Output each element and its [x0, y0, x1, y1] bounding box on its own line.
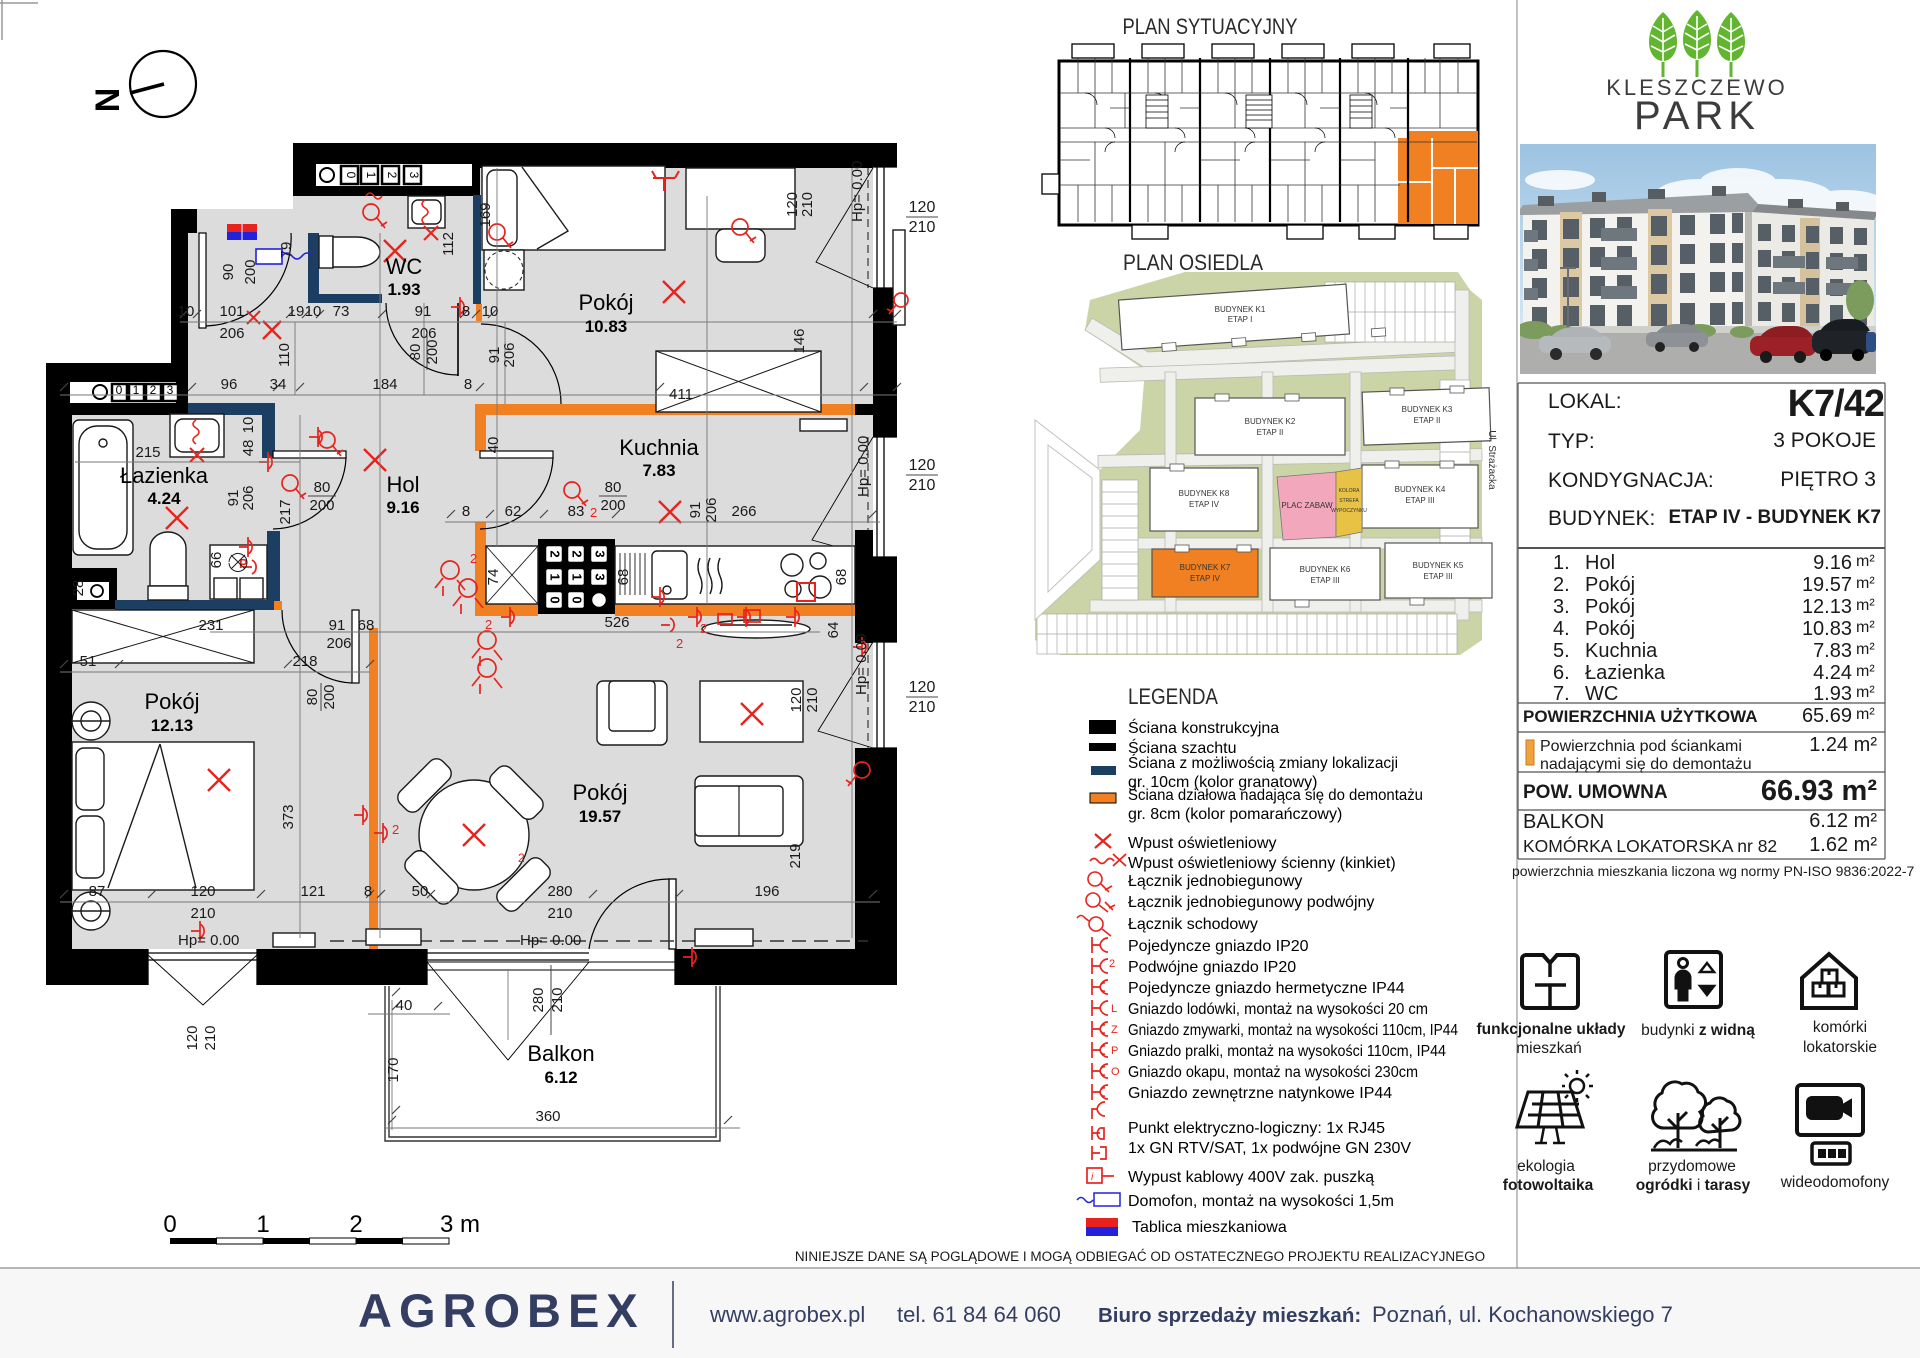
- svg-text:budynki z widną: budynki z widną: [1641, 1022, 1755, 1039]
- svg-text:91: 91: [415, 303, 432, 320]
- svg-text:Hol: Hol: [386, 472, 419, 497]
- svg-text:gr. 8cm (kolor pomarańczowy): gr. 8cm (kolor pomarańczowy): [1128, 806, 1342, 823]
- svg-text:L: L: [1111, 1003, 1117, 1015]
- svg-text:Gniazdo okapu, montaż na wysok: Gniazdo okapu, montaż na wysokości 230cm: [1128, 1064, 1418, 1081]
- svg-text:10: 10: [240, 417, 257, 434]
- svg-text:Tablica mieszkaniowa: Tablica mieszkaniowa: [1132, 1219, 1287, 1236]
- svg-text:280: 280: [530, 987, 547, 1012]
- svg-text:Poznań, ul. Kochanowskiego 7: Poznań, ul. Kochanowskiego 7: [1372, 1302, 1673, 1327]
- svg-text:210: 210: [549, 987, 566, 1012]
- svg-text:BUDYNEK K1: BUDYNEK K1: [1215, 305, 1266, 314]
- svg-text:funkcjonalne układy: funkcjonalne układy: [1476, 1021, 1625, 1038]
- svg-text:19: 19: [288, 303, 305, 320]
- svg-text:Pojedyncze gniazdo hermetyczne: Pojedyncze gniazdo hermetyczne IP44: [1128, 980, 1405, 997]
- svg-text:360: 360: [535, 1108, 560, 1125]
- svg-text:210: 210: [190, 905, 215, 922]
- svg-text:121: 121: [300, 883, 325, 900]
- svg-text:10: 10: [482, 303, 499, 320]
- svg-text:3 POKOJE: 3 POKOJE: [1773, 429, 1876, 452]
- svg-text:0: 0: [548, 596, 563, 603]
- svg-text:KONDYGNACJA:: KONDYGNACJA:: [1548, 469, 1714, 492]
- svg-text:Hp= 0.00: Hp= 0.00: [178, 932, 239, 949]
- svg-text:90: 90: [220, 264, 237, 281]
- svg-text:120: 120: [184, 1025, 201, 1050]
- svg-text:Łazienka: Łazienka: [120, 463, 209, 488]
- svg-text:WC: WC: [386, 254, 423, 279]
- svg-text:68: 68: [833, 569, 850, 586]
- svg-text:210: 210: [909, 477, 936, 494]
- svg-text:7.83: 7.83: [642, 461, 675, 480]
- svg-text:200: 200: [321, 684, 338, 709]
- svg-text:5.: 5.: [1553, 640, 1570, 662]
- svg-text:Wypust kablowy 400V zak. puszk: Wypust kablowy 400V zak. puszką: [1128, 1169, 1374, 1186]
- svg-text:m²: m²: [1856, 663, 1875, 680]
- svg-text:BUDYNEK:: BUDYNEK:: [1548, 507, 1655, 530]
- svg-text:1: 1: [548, 573, 563, 580]
- svg-text:powierzchnia mieszkania liczon: powierzchnia mieszkania liczona wg normy…: [1512, 863, 1915, 879]
- svg-text:200: 200: [309, 497, 334, 514]
- svg-text:2: 2: [385, 172, 399, 179]
- svg-text:196: 196: [754, 883, 779, 900]
- svg-text:ETAP III: ETAP III: [1405, 496, 1434, 505]
- svg-text:Wpust oświetleniowy: Wpust oświetleniowy: [1128, 835, 1277, 852]
- svg-text:80: 80: [314, 479, 331, 496]
- svg-text:83: 83: [568, 503, 585, 520]
- svg-text:ETAP IV - BUDYNEK K7: ETAP IV - BUDYNEK K7: [1668, 507, 1881, 528]
- svg-text:POWIERZCHNIA UŻYTKOWA: POWIERZCHNIA UŻYTKOWA: [1523, 707, 1758, 726]
- svg-text:206: 206: [240, 485, 257, 510]
- svg-text:200: 200: [600, 497, 625, 514]
- svg-text:3 m: 3 m: [440, 1211, 480, 1238]
- svg-text:Hp= 0.00: Hp= 0.00: [853, 634, 870, 695]
- svg-text:m²: m²: [1856, 684, 1875, 701]
- svg-text:80: 80: [304, 689, 321, 706]
- svg-text:91: 91: [329, 617, 346, 634]
- svg-text:210: 210: [799, 192, 816, 217]
- svg-text:73: 73: [333, 303, 350, 320]
- svg-text:Łazienka: Łazienka: [1585, 662, 1666, 684]
- svg-text:Ściana konstrukcyjna: Ściana konstrukcyjna: [1128, 718, 1279, 737]
- svg-text:120: 120: [909, 199, 936, 216]
- svg-text:KOLORA: KOLORA: [1339, 488, 1361, 494]
- svg-text:8: 8: [462, 503, 470, 520]
- svg-text:96: 96: [221, 376, 238, 393]
- svg-text:217: 217: [277, 499, 294, 524]
- svg-text:Podwójne gniazdo IP20: Podwójne gniazdo IP20: [1128, 959, 1296, 976]
- svg-text:120: 120: [909, 679, 936, 696]
- svg-text:8: 8: [462, 303, 470, 320]
- svg-text:K7/42: K7/42: [1788, 383, 1884, 425]
- svg-text:fotowoltaika: fotowoltaika: [1503, 1177, 1594, 1194]
- svg-text:19.57: 19.57: [579, 807, 622, 826]
- svg-text:219: 219: [787, 843, 804, 868]
- svg-text:1.62 m²: 1.62 m²: [1809, 834, 1877, 856]
- svg-text:110: 110: [276, 343, 293, 367]
- svg-text:Gniazdo lodówki, montaż na wys: Gniazdo lodówki, montaż na wysokości 20 …: [1128, 1001, 1428, 1018]
- svg-text:Biuro sprzedaży mieszkań:: Biuro sprzedaży mieszkań:: [1098, 1304, 1361, 1327]
- svg-text:Pojedyncze gniazdo IP20: Pojedyncze gniazdo IP20: [1128, 938, 1309, 955]
- svg-text:3: 3: [593, 550, 608, 557]
- svg-text:10: 10: [178, 303, 195, 320]
- svg-text:210: 210: [804, 687, 821, 712]
- svg-text:120: 120: [788, 687, 805, 712]
- svg-text:0: 0: [163, 1211, 176, 1238]
- svg-text:m²: m²: [1856, 619, 1875, 636]
- svg-text:m²: m²: [1856, 553, 1875, 570]
- svg-text:BUDYNEK K3: BUDYNEK K3: [1402, 405, 1453, 414]
- svg-text:68: 68: [615, 569, 632, 586]
- svg-text:74: 74: [485, 569, 502, 586]
- svg-text:1.93: 1.93: [1813, 683, 1852, 705]
- svg-text:7.83: 7.83: [1813, 640, 1852, 662]
- svg-text:51: 51: [80, 653, 97, 670]
- svg-text:266: 266: [731, 503, 756, 520]
- svg-text:Balkon: Balkon: [527, 1041, 594, 1066]
- svg-text:nadającymi się do demontażu: nadającymi się do demontażu: [1540, 756, 1752, 773]
- svg-text:BUDYNEK K8: BUDYNEK K8: [1179, 489, 1230, 498]
- svg-text:Gniazdo zmywarki, montaż na wy: Gniazdo zmywarki, montaż na wysokości 11…: [1128, 1022, 1458, 1039]
- svg-text:ogródki i tarasy: ogródki i tarasy: [1636, 1177, 1751, 1194]
- svg-text:STREFA: STREFA: [1339, 498, 1359, 504]
- svg-text:Pokój: Pokój: [572, 780, 627, 805]
- svg-text:6.: 6.: [1553, 662, 1570, 684]
- svg-text:4.24: 4.24: [147, 489, 181, 508]
- svg-text:101: 101: [219, 303, 244, 320]
- svg-text:19.57: 19.57: [1802, 574, 1852, 596]
- svg-text:146: 146: [791, 328, 808, 353]
- svg-text:169: 169: [477, 202, 494, 227]
- svg-text:Kuchnia: Kuchnia: [1585, 640, 1658, 662]
- svg-text:ETAP I: ETAP I: [1228, 315, 1253, 324]
- svg-text:210: 210: [909, 699, 936, 716]
- svg-text:1: 1: [570, 573, 585, 580]
- svg-text:8: 8: [364, 883, 372, 900]
- svg-text:2: 2: [570, 550, 585, 557]
- svg-text:PLAN SYTUACYJNY: PLAN SYTUACYJNY: [1123, 14, 1298, 39]
- svg-text:m²: m²: [1856, 597, 1875, 614]
- svg-text:WC: WC: [1585, 683, 1618, 705]
- svg-text:Hp= 0.00: Hp= 0.00: [520, 932, 581, 949]
- svg-text:PARK: PARK: [1634, 94, 1760, 138]
- svg-text:206: 206: [326, 635, 351, 652]
- svg-text:206: 206: [411, 325, 436, 342]
- svg-text:170: 170: [385, 1057, 402, 1082]
- svg-text:Łącznik jednobiegunowy podwójn: Łącznik jednobiegunowy podwójny: [1128, 894, 1374, 911]
- svg-text:2: 2: [349, 1211, 362, 1238]
- svg-text:Domofon, montaż na wysokości 1: Domofon, montaż na wysokości 1,5m: [1128, 1193, 1394, 1210]
- svg-text:120: 120: [909, 457, 936, 474]
- svg-text:28: 28: [70, 580, 87, 597]
- svg-text:BUDYNEK K7: BUDYNEK K7: [1180, 563, 1231, 572]
- svg-text:206: 206: [703, 497, 720, 522]
- svg-text:2: 2: [548, 550, 563, 557]
- svg-text:206: 206: [501, 342, 518, 367]
- svg-text:10.83: 10.83: [585, 317, 628, 336]
- svg-text:ETAP IV: ETAP IV: [1190, 574, 1221, 583]
- svg-text:KOMÓRKA LOKATORSKA nr 82: KOMÓRKA LOKATORSKA nr 82: [1523, 835, 1777, 856]
- svg-text:9.16: 9.16: [1813, 552, 1852, 574]
- svg-text:80: 80: [605, 479, 622, 496]
- svg-text:1.: 1.: [1553, 552, 1570, 574]
- svg-text:Łącznik jednobiegunowy: Łącznik jednobiegunowy: [1128, 873, 1302, 890]
- svg-text:10.83: 10.83: [1802, 618, 1852, 640]
- svg-text:210: 210: [909, 219, 936, 236]
- svg-text:1x GN RTV/SAT, 1x podwójne GN: 1x GN RTV/SAT, 1x podwójne GN 230V: [1128, 1140, 1411, 1157]
- svg-text:0: 0: [344, 172, 358, 179]
- svg-text:1.93: 1.93: [387, 280, 420, 299]
- svg-text:65.69: 65.69: [1802, 705, 1852, 727]
- svg-text:komórki: komórki: [1813, 1019, 1867, 1036]
- svg-text:206: 206: [219, 325, 244, 342]
- svg-text:wideodomofony: wideodomofony: [1780, 1174, 1890, 1191]
- svg-text:66: 66: [208, 552, 225, 569]
- svg-text:79: 79: [278, 242, 295, 259]
- svg-text:Ściana z możliwością zmiany lo: Ściana z możliwością zmiany lokalizacji: [1128, 753, 1398, 772]
- svg-text:N: N: [89, 88, 127, 113]
- svg-text:2: 2: [518, 851, 525, 865]
- svg-text:POW. UMOWNA: POW. UMOWNA: [1523, 782, 1668, 803]
- svg-text:m²: m²: [1856, 641, 1875, 658]
- svg-text:1: 1: [364, 172, 378, 179]
- svg-text:ETAP IV: ETAP IV: [1189, 500, 1220, 509]
- svg-text:9.16: 9.16: [386, 498, 419, 517]
- svg-text:7.: 7.: [1553, 683, 1570, 705]
- svg-text:66.93 m²: 66.93 m²: [1761, 775, 1877, 807]
- svg-text:tel. 61 84 64 060: tel. 61 84 64 060: [897, 1302, 1061, 1327]
- svg-text:62: 62: [505, 503, 522, 520]
- svg-text:0: 0: [570, 596, 585, 603]
- svg-text:BUDYNEK K4: BUDYNEK K4: [1395, 485, 1446, 494]
- svg-text:AGROBEX: AGROBEX: [358, 1284, 645, 1337]
- svg-text:Hol: Hol: [1585, 552, 1615, 574]
- svg-text:120: 120: [190, 883, 215, 900]
- svg-text:218: 218: [292, 653, 317, 670]
- svg-text:10: 10: [305, 303, 322, 320]
- svg-text:Pokój: Pokój: [1585, 618, 1635, 640]
- svg-text:40: 40: [396, 997, 413, 1014]
- svg-text:80: 80: [407, 344, 424, 361]
- svg-text:mieszkań: mieszkań: [1516, 1040, 1581, 1057]
- svg-text:2: 2: [470, 551, 477, 566]
- svg-text:8: 8: [464, 376, 472, 393]
- svg-text:3.: 3.: [1553, 596, 1570, 618]
- svg-text:LOKAL:: LOKAL:: [1548, 390, 1622, 413]
- svg-text:2: 2: [700, 621, 707, 636]
- svg-text:64: 64: [825, 622, 842, 639]
- svg-text:Hp= 0.00: Hp= 0.00: [849, 161, 866, 222]
- svg-text:3: 3: [593, 573, 608, 580]
- svg-text:3: 3: [407, 172, 421, 179]
- svg-text:87: 87: [89, 883, 106, 900]
- svg-text:Pokój: Pokój: [144, 689, 199, 714]
- svg-text:m²: m²: [1856, 706, 1875, 723]
- svg-text:BUDYNEK K5: BUDYNEK K5: [1413, 561, 1464, 570]
- svg-text:184: 184: [372, 376, 397, 393]
- svg-text:91: 91: [687, 502, 704, 519]
- svg-text:210: 210: [547, 905, 572, 922]
- svg-text:1.24 m²: 1.24 m²: [1809, 734, 1877, 756]
- svg-text:373: 373: [280, 804, 297, 829]
- svg-text:PLAC ZABAW: PLAC ZABAW: [1281, 501, 1333, 510]
- svg-text:ETAP II: ETAP II: [1414, 416, 1441, 425]
- svg-text:m²: m²: [1856, 575, 1875, 592]
- svg-text:P: P: [1111, 1045, 1118, 1057]
- svg-text:LEGENDA: LEGENDA: [1128, 684, 1218, 709]
- svg-text:6.12: 6.12: [544, 1068, 577, 1087]
- svg-text:6.12 m²: 6.12 m²: [1809, 810, 1877, 832]
- svg-text:Pokój: Pokój: [578, 290, 633, 315]
- svg-text:Gniazdo pralki, montaż na wyso: Gniazdo pralki, montaż na wysokości 110c…: [1128, 1043, 1446, 1060]
- svg-text:2.: 2.: [1553, 574, 1570, 596]
- svg-text:BUDYNEK K2: BUDYNEK K2: [1245, 417, 1296, 426]
- svg-text:Łącznik schodowy: Łącznik schodowy: [1128, 916, 1258, 933]
- svg-text:TYP:: TYP:: [1548, 430, 1595, 453]
- svg-text:200: 200: [242, 259, 259, 284]
- svg-text:12.13: 12.13: [1802, 596, 1852, 618]
- svg-text:Punkt elektryczno-logiczny: 1x: Punkt elektryczno-logiczny: 1x RJ45: [1128, 1120, 1385, 1137]
- svg-text:Hp= 0.00: Hp= 0.00: [855, 436, 872, 497]
- svg-text:BALKON: BALKON: [1523, 811, 1604, 833]
- svg-text:Ściana działowa nadająca się d: Ściana działowa nadająca się do demontaż…: [1128, 785, 1423, 804]
- svg-text:PIĘTRO 3: PIĘTRO 3: [1780, 468, 1876, 491]
- svg-text:2: 2: [392, 822, 399, 837]
- svg-text:50: 50: [412, 883, 429, 900]
- svg-text:Z: Z: [1111, 1024, 1118, 1036]
- svg-text:2: 2: [676, 636, 683, 651]
- svg-text:Kuchnia: Kuchnia: [619, 435, 699, 460]
- svg-text:215: 215: [135, 444, 160, 461]
- svg-text:231: 231: [198, 617, 223, 634]
- svg-text:BUDYNEK K6: BUDYNEK K6: [1300, 565, 1351, 574]
- svg-text:ETAP II: ETAP II: [1257, 428, 1284, 437]
- svg-text:4.: 4.: [1553, 618, 1570, 640]
- svg-text:4.24: 4.24: [1813, 662, 1852, 684]
- svg-text:ekologia: ekologia: [1517, 1158, 1575, 1175]
- svg-text:Pokój: Pokój: [1585, 574, 1635, 596]
- svg-text:210: 210: [202, 1025, 219, 1050]
- svg-text:PLAN OSIEDLA: PLAN OSIEDLA: [1123, 250, 1263, 275]
- svg-text:12.13: 12.13: [151, 716, 194, 735]
- svg-text:Wpust oświetleniowy ścienny (k: Wpust oświetleniowy ścienny (kinkiet): [1128, 855, 1396, 872]
- svg-text:68: 68: [358, 617, 375, 634]
- svg-text:2: 2: [590, 505, 597, 520]
- svg-text:Gniazdo zewnętrzne natynkowe I: Gniazdo zewnętrzne natynkowe IP44: [1128, 1085, 1392, 1102]
- svg-text:411: 411: [669, 386, 693, 403]
- svg-text:Powierzchnia pod ściankami: Powierzchnia pod ściankami: [1540, 738, 1742, 755]
- svg-text:przydomowe: przydomowe: [1648, 1158, 1736, 1175]
- svg-text:WYPOCZYNKU: WYPOCZYNKU: [1331, 508, 1367, 514]
- svg-text:40: 40: [485, 437, 502, 454]
- svg-text:526: 526: [604, 614, 629, 631]
- svg-text:280: 280: [547, 883, 572, 900]
- svg-text:ETAP III: ETAP III: [1423, 572, 1452, 581]
- svg-text:Ul. Strażacka: Ul. Strażacka: [1486, 430, 1497, 490]
- svg-text:NINIEJSZE DANE SĄ POGLĄDOWE I: NINIEJSZE DANE SĄ POGLĄDOWE I MOGĄ ODBIE…: [795, 1249, 1485, 1264]
- svg-text:O: O: [1111, 1066, 1120, 1078]
- svg-text:34: 34: [270, 376, 287, 393]
- svg-text:2: 2: [485, 617, 492, 632]
- svg-text:2: 2: [1109, 958, 1115, 970]
- svg-text:lokatorskie: lokatorskie: [1803, 1039, 1877, 1056]
- svg-text:48: 48: [240, 440, 257, 457]
- svg-text:ETAP III: ETAP III: [1310, 576, 1339, 585]
- svg-text:www.agrobex.pl: www.agrobex.pl: [709, 1302, 865, 1327]
- svg-text:Pokój: Pokój: [1585, 596, 1635, 618]
- svg-text:112: 112: [440, 232, 457, 256]
- svg-text:1: 1: [256, 1211, 269, 1238]
